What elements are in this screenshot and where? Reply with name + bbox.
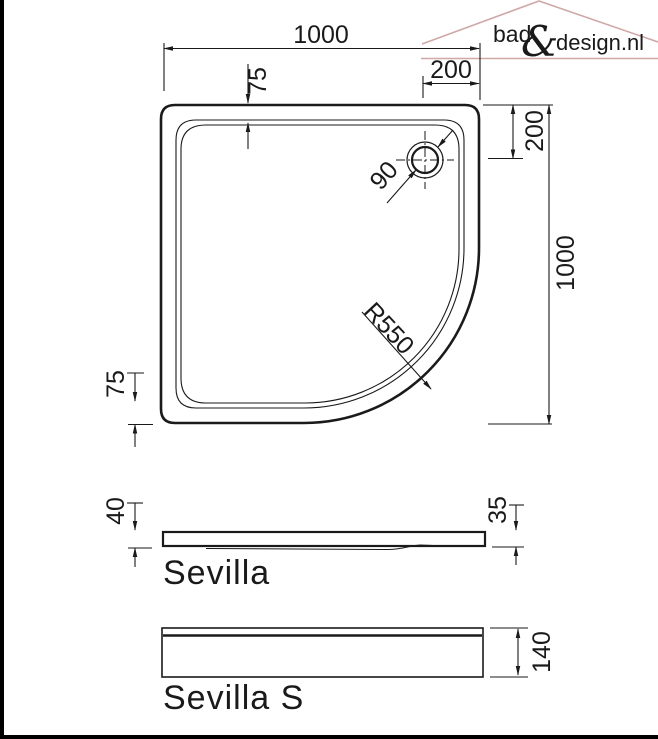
sevilla-profile: 40 35 Sevilla: [102, 496, 524, 592]
dim-corner-radius-value: R550: [358, 297, 419, 360]
dim-height-right-value: 1000: [552, 235, 580, 291]
scan-edge-left: [0, 0, 4, 739]
dim-rim-bottom-value: 75: [102, 370, 130, 398]
dim-drain-offset-x-value: 200: [430, 56, 472, 84]
dim-sevilla-height-left: 40: [102, 497, 152, 567]
dim-rim-top: 75: [244, 64, 272, 149]
dim-drain-offset-x: 200: [423, 56, 479, 98]
brand-ampersand: &: [521, 17, 558, 66]
sevilla-label: Sevilla: [163, 554, 270, 592]
dim-sevilla-height-right-value: 35: [484, 496, 512, 524]
brand-suffix: design.nl: [556, 30, 644, 55]
dim-drain-offset-y: 200: [483, 105, 553, 159]
dim-sevilla-s-height: 140: [490, 628, 556, 677]
technical-drawing: bad & design.nl 1000 200 75: [0, 0, 658, 739]
dim-rim-bottom: 75: [102, 370, 153, 447]
dim-height-right: 1000: [488, 105, 580, 424]
tray-top-view: [161, 105, 479, 423]
dim-sevilla-height-right: 35: [484, 496, 524, 565]
sevilla-s-label: Sevilla S: [163, 679, 304, 717]
tray-rim-inner-line-1: [176, 120, 464, 408]
dim-rim-top-value: 75: [244, 67, 272, 95]
tray-outer-outline: [161, 105, 479, 423]
scan-edge-bottom: [0, 735, 658, 739]
drain: [396, 131, 454, 189]
dim-width-top-value: 1000: [293, 21, 349, 49]
dim-drain-diameter-value: 90: [364, 156, 403, 195]
sevilla-s-profile: 140 Sevilla S: [162, 628, 556, 717]
drawing-page: bad & design.nl 1000 200 75: [0, 0, 658, 739]
dim-sevilla-height-left-value: 40: [102, 497, 130, 525]
dim-sevilla-s-height-value: 140: [528, 631, 556, 673]
dim-corner-radius: R550: [358, 297, 431, 389]
sevilla-profile-body: [163, 532, 485, 546]
dim-drain-offset-y-value: 200: [521, 110, 549, 152]
